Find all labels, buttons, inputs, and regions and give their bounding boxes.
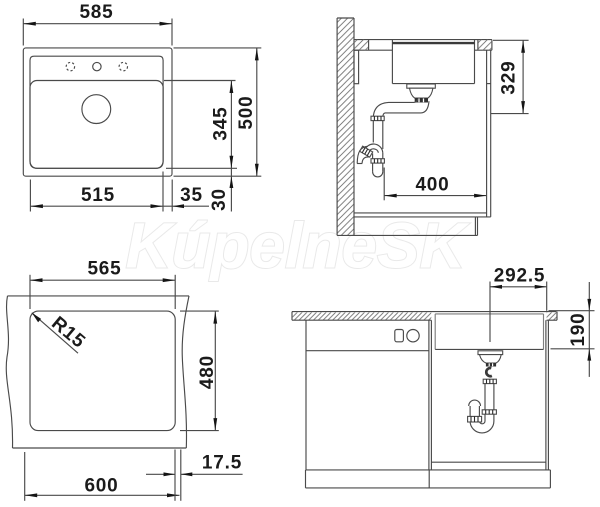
svg-text:500: 500 <box>236 95 257 129</box>
svg-text:17.5: 17.5 <box>202 453 242 474</box>
svg-text:400: 400 <box>415 175 449 196</box>
svg-text:30: 30 <box>209 188 230 211</box>
svg-text:329: 329 <box>499 60 520 94</box>
svg-text:KúpelneSK: KúpelneSK <box>126 210 471 282</box>
svg-text:565: 565 <box>87 259 121 280</box>
svg-text:345: 345 <box>211 106 232 140</box>
svg-text:190: 190 <box>568 312 589 346</box>
svg-text:515: 515 <box>81 185 115 206</box>
svg-text:585: 585 <box>79 2 113 23</box>
svg-text:292.5: 292.5 <box>494 266 546 287</box>
svg-text:600: 600 <box>84 476 118 497</box>
svg-text:35: 35 <box>180 185 203 206</box>
